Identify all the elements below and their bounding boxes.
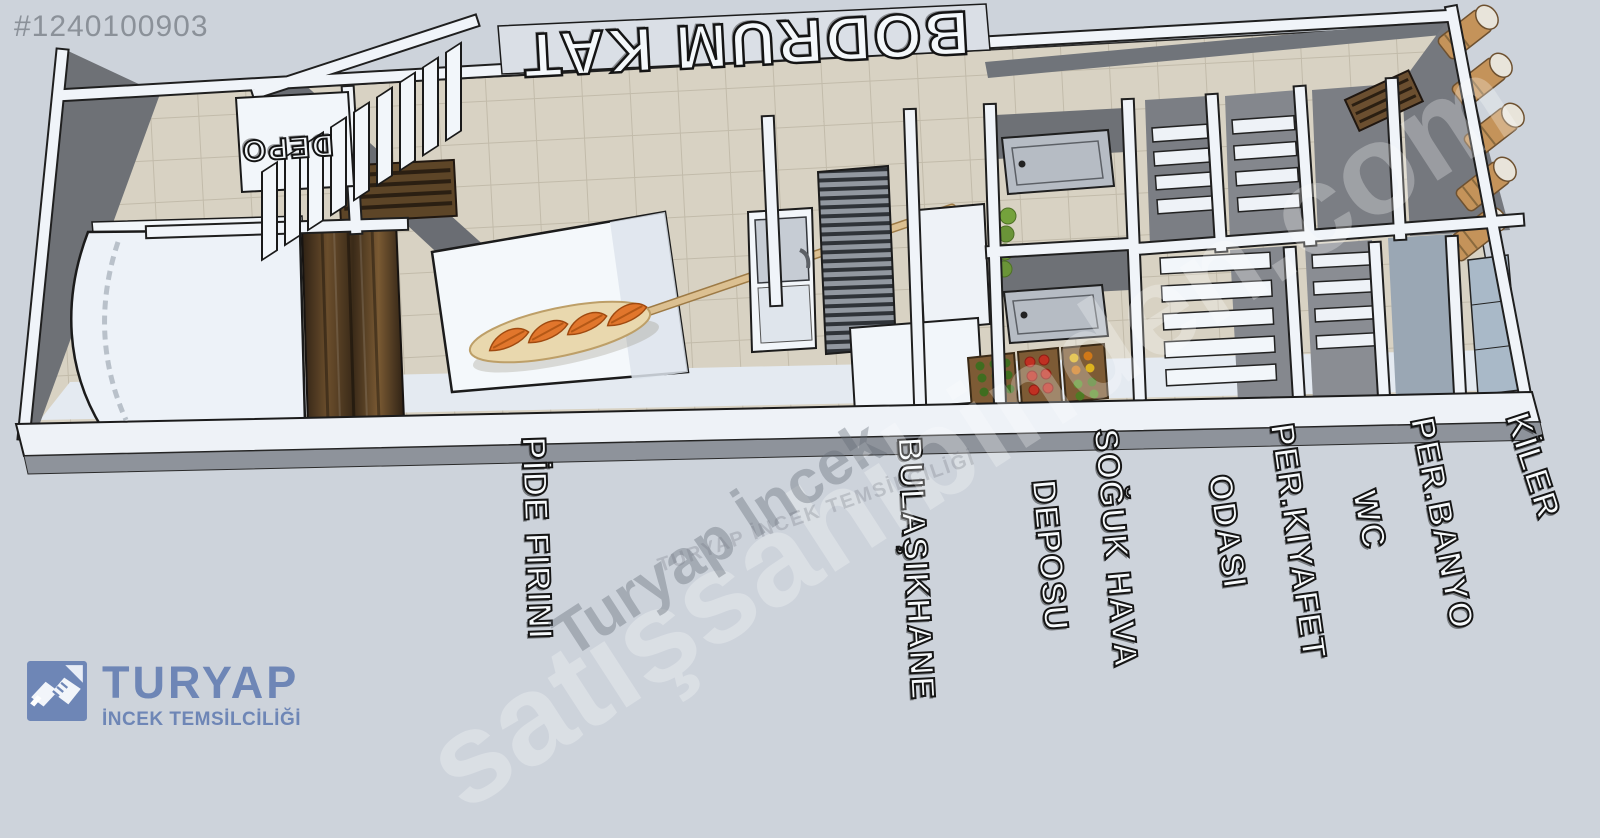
photo-id: #1240100903 <box>14 10 209 44</box>
wood-oven-counter <box>302 222 404 426</box>
floorplan-render <box>0 0 1600 747</box>
agency-name: TURYAP <box>102 660 301 705</box>
agency-text: TURYAP İNCEK TEMSİLCİLİĞİ <box>102 660 301 731</box>
handshake-icon <box>26 660 88 727</box>
room-label-pide-firini: PİDE FIRINI <box>513 436 559 641</box>
agency-logo: TURYAP İNCEK TEMSİLCİLİĞİ <box>26 660 301 731</box>
agency-branch: İNCEK TEMSİLCİLİĞİ <box>102 709 301 731</box>
